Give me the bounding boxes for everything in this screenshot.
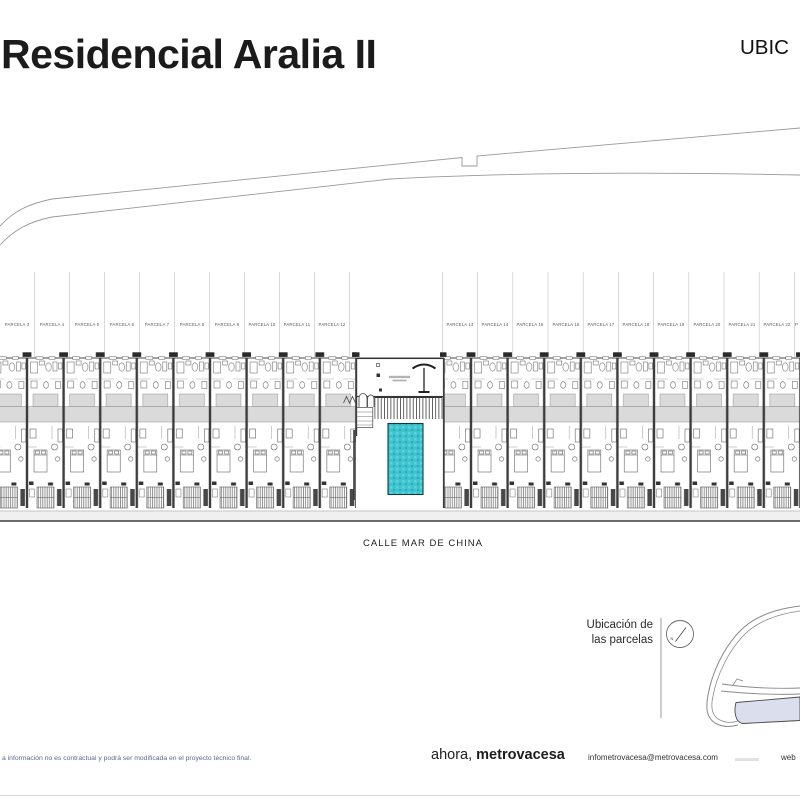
pergola-deck xyxy=(375,398,443,420)
brand-lockup: ahora, metrovacesa xyxy=(431,747,565,763)
web-label: web xyxy=(781,753,796,762)
tiny-text-smudge xyxy=(393,380,407,382)
parcel-label: PARCELA 8 xyxy=(180,322,205,327)
map-caption-line1: Ubicación de xyxy=(553,618,653,633)
parcel-label: PARCELA 13 xyxy=(447,322,474,327)
legend-mark-icon xyxy=(379,389,382,392)
north-label: N xyxy=(671,637,674,641)
community-area xyxy=(344,352,447,508)
sidewalk-strip xyxy=(0,511,800,521)
contact-email: infometrovacesa@metrovacesa.com xyxy=(588,753,718,762)
parcel-label: PARCELA 9 xyxy=(215,322,240,327)
parcel-label: PARCELA 10 xyxy=(249,322,276,327)
parcel-label: PARCELA 4 xyxy=(40,322,65,327)
legend-mark-icon xyxy=(377,374,381,378)
parcel-label: PARCELA 21 xyxy=(729,322,756,327)
bottom-rule xyxy=(0,795,800,796)
street-label: CALLE MAR DE CHINA xyxy=(363,538,483,549)
north-indicator: N xyxy=(667,621,694,648)
parcel-label: PARCELA 18 xyxy=(623,322,650,327)
plan-sheet: Residencial Aralia II UBIC xyxy=(0,0,800,800)
parcel-label: PARCELA 19 xyxy=(658,322,685,327)
pool xyxy=(388,424,423,495)
parcel-label: P xyxy=(795,322,798,327)
parcel-labels: PARCELA 3 PARCELA 4 PARCELA 5 PARCELA 6 … xyxy=(5,322,798,327)
parcel-label: PARCELA 11 xyxy=(284,322,311,327)
parcel-label: PARCELA 22 xyxy=(764,322,791,327)
faint-footer-mark xyxy=(735,758,759,761)
parcel-label: PARCELA 20 xyxy=(694,322,721,327)
parcel-label: PARCELA 5 xyxy=(75,322,100,327)
parcel-label: PARCELA 14 xyxy=(482,322,509,327)
boundary-road xyxy=(0,128,800,245)
parcel-label: PARCELA 16 xyxy=(553,322,580,327)
parcel-label: PARCELA 17 xyxy=(588,322,615,327)
housing-block-right xyxy=(444,348,800,510)
tiny-text-smudge xyxy=(389,376,410,378)
housing-block-left xyxy=(0,348,356,510)
highlighted-parcels-band xyxy=(735,697,800,724)
parcel-label: PARCELA 12 xyxy=(319,322,346,327)
location-map: N xyxy=(661,606,800,726)
brand-bold: metrovacesa xyxy=(476,747,565,763)
parcel-label: PARCELA 7 xyxy=(145,322,170,327)
parcel-label: PARCELA 6 xyxy=(110,322,135,327)
footer-disclaimer: a información no es contractual y podrá … xyxy=(2,755,251,762)
parcel-grid-lines xyxy=(0,272,794,357)
map-caption-line2: las parcelas xyxy=(553,633,653,648)
parcel-label: PARCELA 15 xyxy=(517,322,544,327)
site-plan-drawing: PARCELA 3 PARCELA 4 PARCELA 5 PARCELA 6 … xyxy=(0,0,800,800)
parcel-label: PARCELA 3 xyxy=(5,322,30,327)
brand-regular: ahora, xyxy=(431,747,472,763)
map-caption: Ubicación de las parcelas xyxy=(553,618,653,647)
